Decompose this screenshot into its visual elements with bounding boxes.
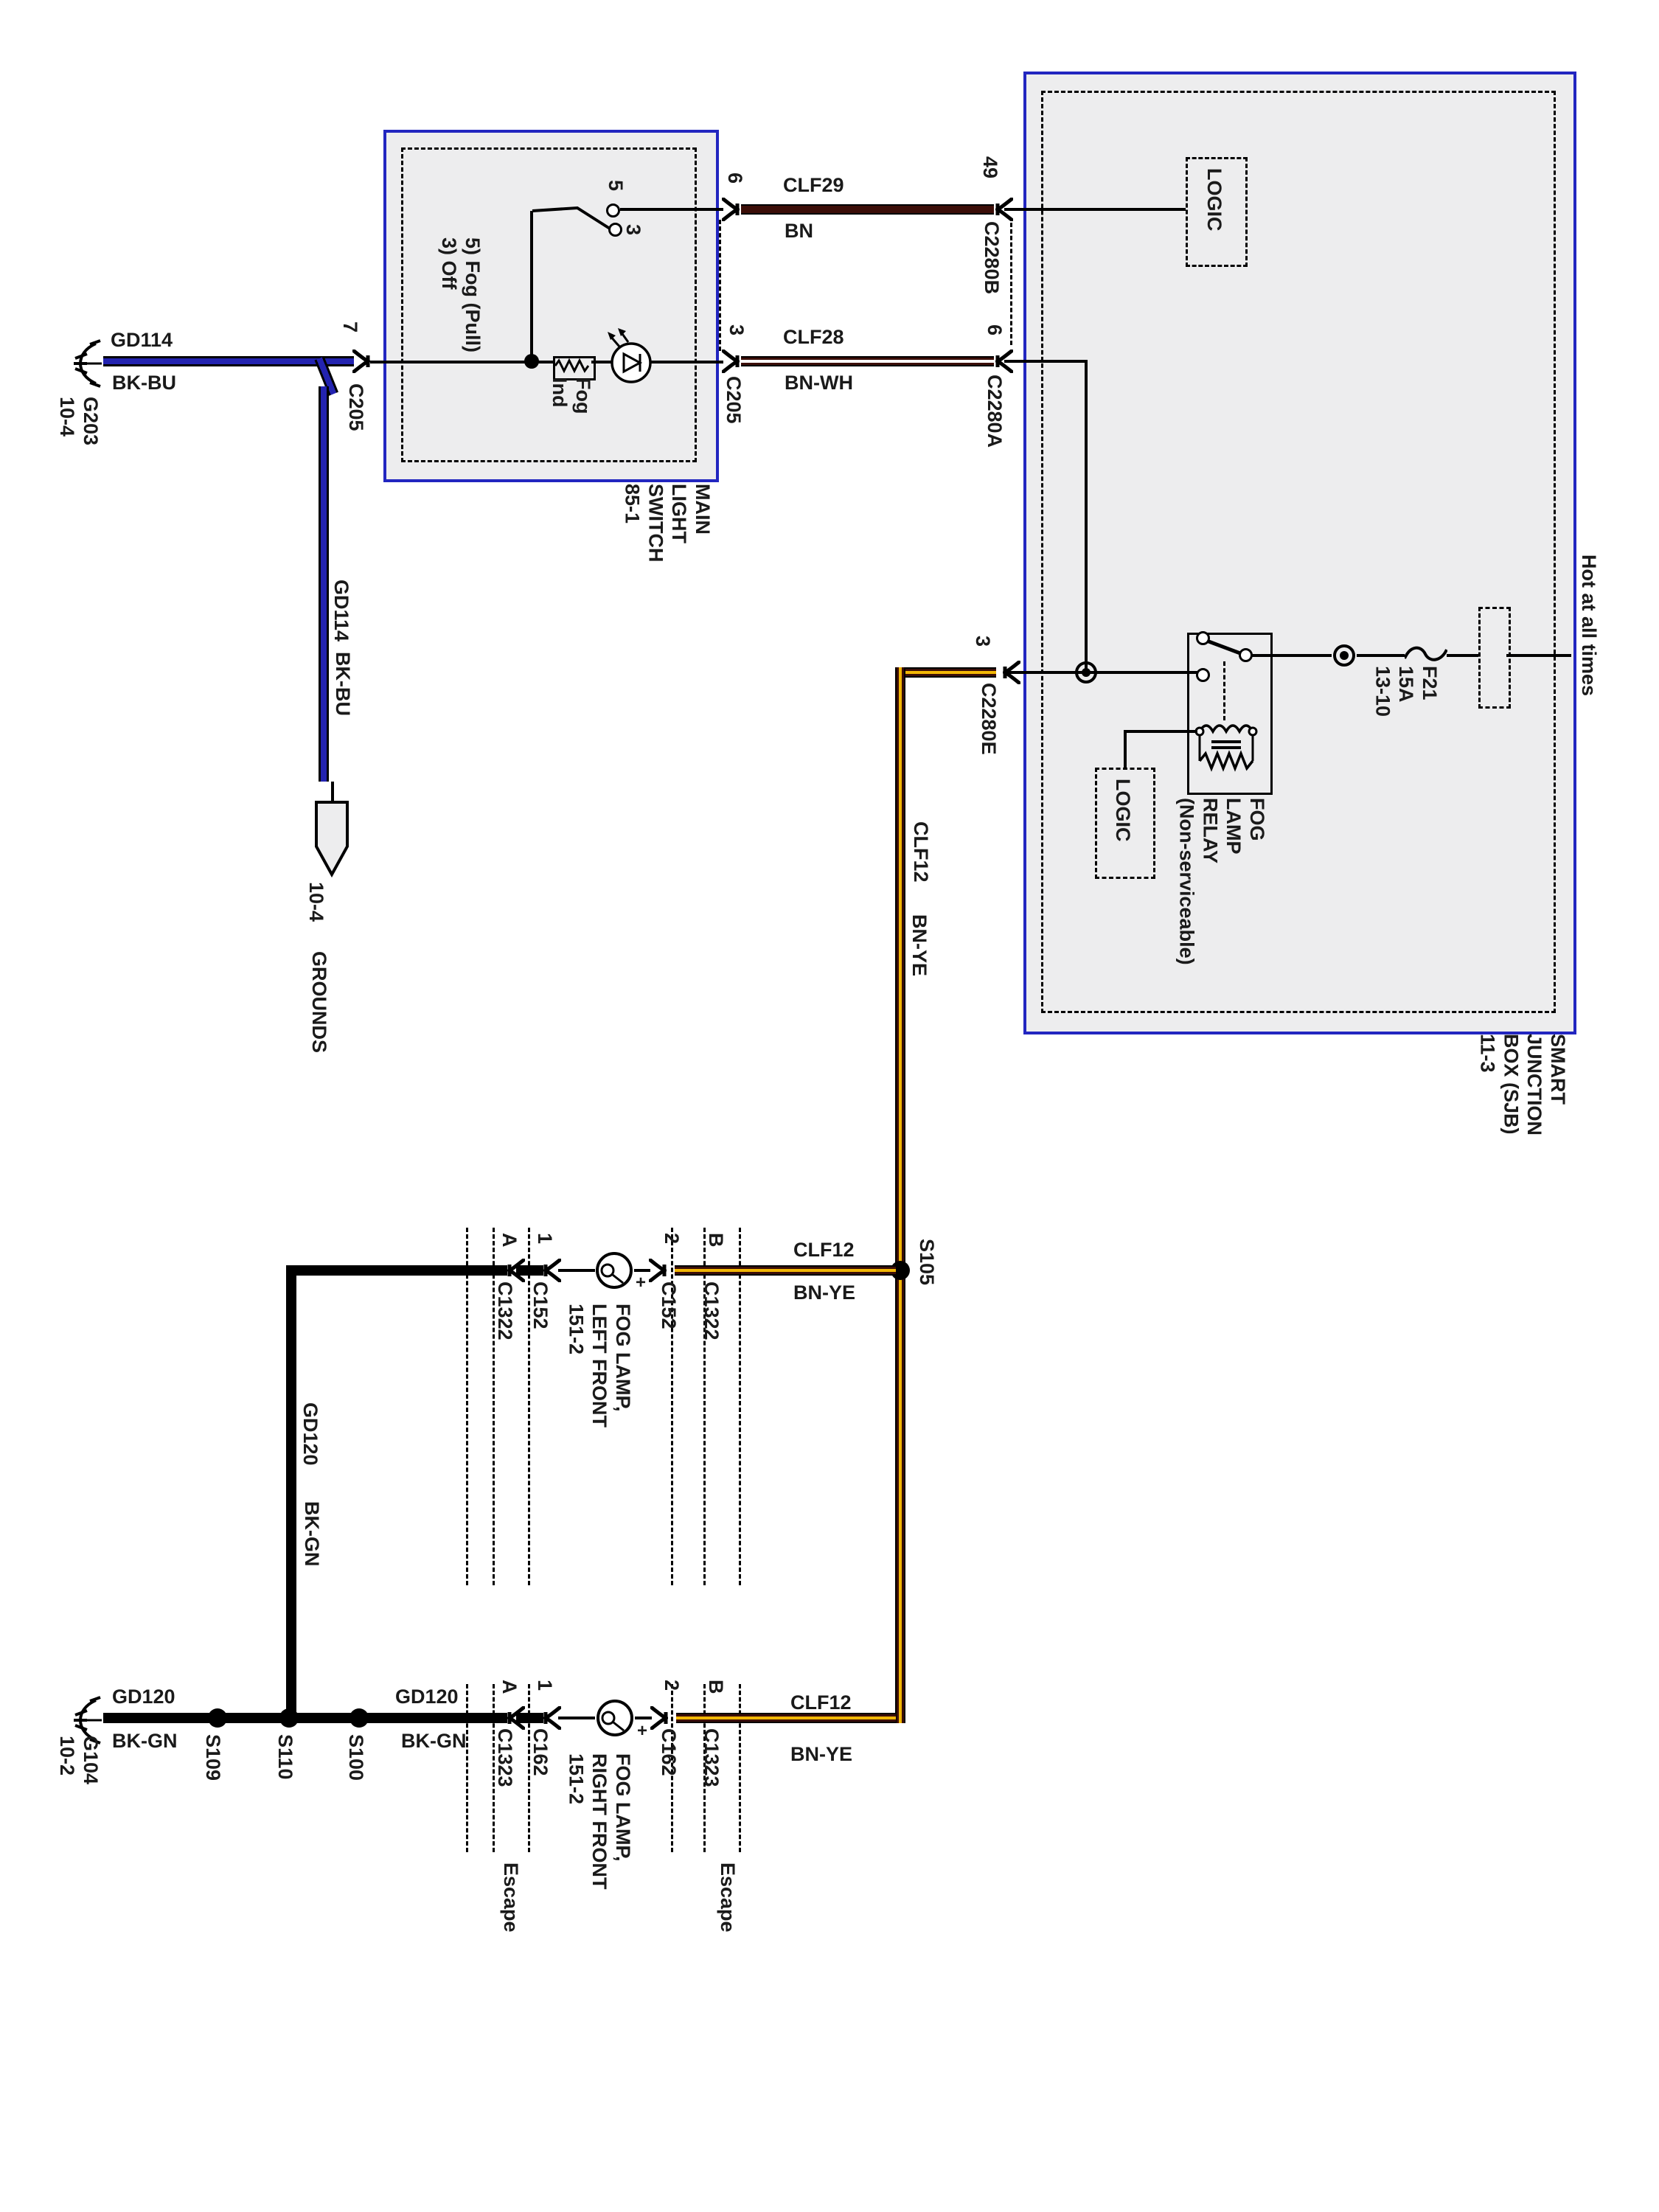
logic-bottom-label: LOGIC (1109, 779, 1134, 864)
relay-to-splice-wire (1251, 654, 1332, 657)
coil-to-logic-wire-h (1124, 730, 1197, 733)
c1322-dash-b2 (739, 1228, 741, 1585)
splice-ring-feed (1074, 660, 1099, 685)
fuse-icon (1405, 644, 1447, 667)
offpage-ref-label: 10-4 (302, 882, 327, 941)
pin1-row2: 1 (534, 1680, 556, 1705)
ground-symbol-g203 (69, 339, 102, 388)
switch-arm (530, 202, 613, 233)
c205-right-label: C205 (720, 376, 745, 447)
bkgn-v-label: BK-GN (298, 1501, 323, 1582)
relay-actuator-dashed (1223, 661, 1225, 720)
c2280a-label: C2280A (981, 375, 1006, 463)
fog-lamp-left-bulb-icon (594, 1251, 634, 1291)
escape-label-a: Escape (497, 1863, 522, 1973)
bnwh-label: BN-WH (785, 372, 853, 395)
c1323-a-label: C1323 (491, 1728, 516, 1817)
s100-label: S100 (342, 1734, 367, 1808)
pin2-row2: 2 (661, 1680, 683, 1705)
fog-lamp-right-bulb-icon (595, 1699, 635, 1739)
clf12-row2-label: CLF12 (790, 1691, 852, 1715)
switch-pin5-terminal (606, 204, 620, 218)
splice-s100-dot (349, 1708, 369, 1728)
s110-label: S110 (271, 1734, 296, 1808)
switch-internal-wire-left (370, 361, 553, 364)
lamp1-plus-mark: + (636, 1273, 646, 1293)
connector-arrow-c205-pin7 (352, 349, 370, 373)
fuse-holder-dashed (1478, 607, 1511, 709)
main-light-switch-title: MAIN LIGHT SWITCH 85-1 (622, 484, 714, 631)
wire-clf28 (741, 356, 994, 366)
wire-clf12-row2 (676, 1713, 896, 1723)
gd114-v-label: GD114 (327, 580, 352, 653)
pin7-label: 7 (339, 321, 361, 347)
bkgn-row2-left-label: BK-GN (112, 1730, 178, 1753)
bn-label: BN (785, 220, 813, 243)
escape-label-b: Escape (714, 1863, 739, 1973)
bkgn-row2-right-label: BK-GN (401, 1730, 467, 1753)
wire-gd120-row1 (291, 1265, 507, 1276)
c152-2-label: C152 (655, 1281, 680, 1363)
clf29-label: CLF29 (783, 174, 844, 198)
bnye-row1-label: BN-YE (793, 1281, 855, 1305)
c205-left-label: C205 (342, 383, 367, 454)
c1322-b-label: C1322 (698, 1281, 723, 1370)
pinA-row2: A (498, 1680, 521, 1705)
c1322-dash-a1 (466, 1228, 468, 1585)
pin2-row1: 2 (661, 1233, 683, 1258)
coil-to-logic-wire-v (1124, 730, 1127, 769)
s109-label: S109 (199, 1734, 224, 1808)
wire-seg-row2 (516, 1713, 543, 1723)
c162-2-label: C162 (655, 1728, 680, 1809)
relay-pin-upper (1196, 631, 1210, 645)
fog-lamp-right-label: FOG LAMP, RIGHT FRONT 151-2 (565, 1753, 634, 1982)
logic-top-label: LOGIC (1200, 168, 1225, 254)
wire-clf12-riser (895, 667, 905, 1723)
hot-at-all-times-label: Hot at all times (1575, 554, 1600, 746)
clf28-label: CLF28 (783, 326, 844, 349)
splice-s110-dot (279, 1708, 299, 1728)
switch-pin3-terminal (608, 223, 622, 237)
c205-pin-link-dashed (719, 220, 721, 351)
bnye-row2-label: BN-YE (790, 1743, 852, 1767)
pin3-sjb-label: 3 (972, 636, 994, 661)
bkbu-h-label: BK-BU (112, 372, 176, 395)
clf12-riser-label: CLF12 (907, 821, 932, 902)
fuse-label: F21 15A 13-10 (1371, 666, 1441, 754)
lamp2-plus-mark: + (637, 1721, 647, 1742)
c2280-pin-link-dashed (1010, 223, 1012, 345)
c1323-dash-b2 (739, 1684, 741, 1852)
fog-lamp-left-label: FOG LAMP, LEFT FRONT 151-2 (565, 1304, 634, 1532)
c152-1-label: C152 (526, 1281, 552, 1363)
pinA-row1: A (498, 1233, 521, 1258)
gd120-row2-left-label: GD120 (112, 1686, 175, 1709)
sjb-title: SMART JUNCTION BOX (SJB) 11-3 (1478, 1034, 1569, 1240)
led-to-edge-wire (650, 361, 723, 364)
relay-feed-wire (1004, 671, 1205, 674)
c1323-dash-a1 (466, 1684, 468, 1852)
wire-gd120-row2 (103, 1713, 507, 1723)
clf28-inner-wire (1004, 360, 1087, 363)
c1322-a-label: C1322 (491, 1281, 516, 1370)
gd120-v-label: GD120 (296, 1402, 321, 1484)
grounds-label: GROUNDS (305, 951, 330, 1077)
c162-1-label: C162 (526, 1728, 552, 1809)
bnye-riser-label: BN-YE (905, 914, 931, 995)
pinB-row2: B (705, 1680, 727, 1705)
splice-s109-dot (208, 1708, 227, 1728)
switch-position-legend: 5) Fog (Pull) 3) Off (437, 237, 484, 473)
relay-coil-icon (1192, 718, 1263, 777)
g203-label: G203 10-4 (55, 397, 102, 478)
relay-pin-common (1196, 668, 1210, 682)
c2280b-label: C2280B (978, 221, 1003, 310)
s105-label: S105 (913, 1239, 938, 1312)
pin1-row1: 1 (534, 1233, 556, 1258)
splice-to-fuse-wire (1357, 654, 1405, 657)
wire-clf29 (741, 204, 994, 215)
switch-pin3-label: 3 (622, 224, 644, 249)
lamp1-lead-left (558, 1269, 595, 1272)
connector-arrow-c205-pin3 (722, 349, 740, 373)
wire-clf12-c2280e (900, 667, 996, 678)
switch-stem-line (530, 211, 533, 361)
pin49-label: 49 (976, 156, 1001, 201)
c2280e-label: C2280E (975, 683, 1000, 779)
connector-arrow-c205-pin6 (722, 198, 740, 221)
clf29-logic-wire (1004, 208, 1186, 211)
pinB-row1: B (705, 1233, 727, 1258)
c1323-b-label: C1323 (698, 1728, 723, 1817)
gd114-h-label: GD114 (111, 329, 173, 352)
connector-arrow-c2280e (1003, 661, 1020, 684)
fog-ind-resistor-zigzag (555, 358, 589, 374)
connector-arrow-c152-2 (649, 1259, 667, 1282)
splice-ring-hot (1332, 643, 1357, 668)
fog-indicator-led-icon (590, 326, 661, 388)
g104-label: G104 10-2 (55, 1736, 102, 1824)
wire-clf12-row1 (675, 1265, 896, 1276)
wiring-diagram-page: MAIN LIGHT SWITCH 85-1 5) Fog (Pull) 3) … (0, 0, 1659, 2212)
pin3-switch-label: 3 (726, 324, 748, 349)
pin6-switch-label: 6 (724, 173, 746, 198)
connector-arrow-c162-2 (650, 1706, 668, 1730)
gd120-row2-right-label: GD120 (395, 1686, 459, 1709)
switch-pin5-label: 5 (605, 180, 627, 205)
wire-gd120-vertical (286, 1265, 296, 1718)
wire-seg-row1 (516, 1265, 543, 1276)
offpage-ground-arrow (314, 801, 349, 877)
fuse-to-holder-wire (1447, 654, 1478, 657)
relay-label: FOG LAMP RELAY (Non-serviceable) (1177, 798, 1268, 1019)
switch-pin5-wire (620, 208, 723, 211)
hot-feed-wire (1506, 654, 1571, 657)
gd114-to-offpage-stub (331, 782, 334, 801)
lamp1-lead-right (634, 1269, 650, 1272)
lamp2-lead-left (558, 1717, 595, 1719)
clf28-riser (1085, 360, 1088, 674)
lamp2-lead-right (635, 1717, 652, 1719)
bkbu-v-label: BK-BU (329, 652, 354, 733)
fog-ind-label: Fog Ind (547, 378, 594, 451)
pin6-sjb-label: 6 (984, 324, 1006, 349)
clf12-row1-label: CLF12 (793, 1239, 855, 1262)
